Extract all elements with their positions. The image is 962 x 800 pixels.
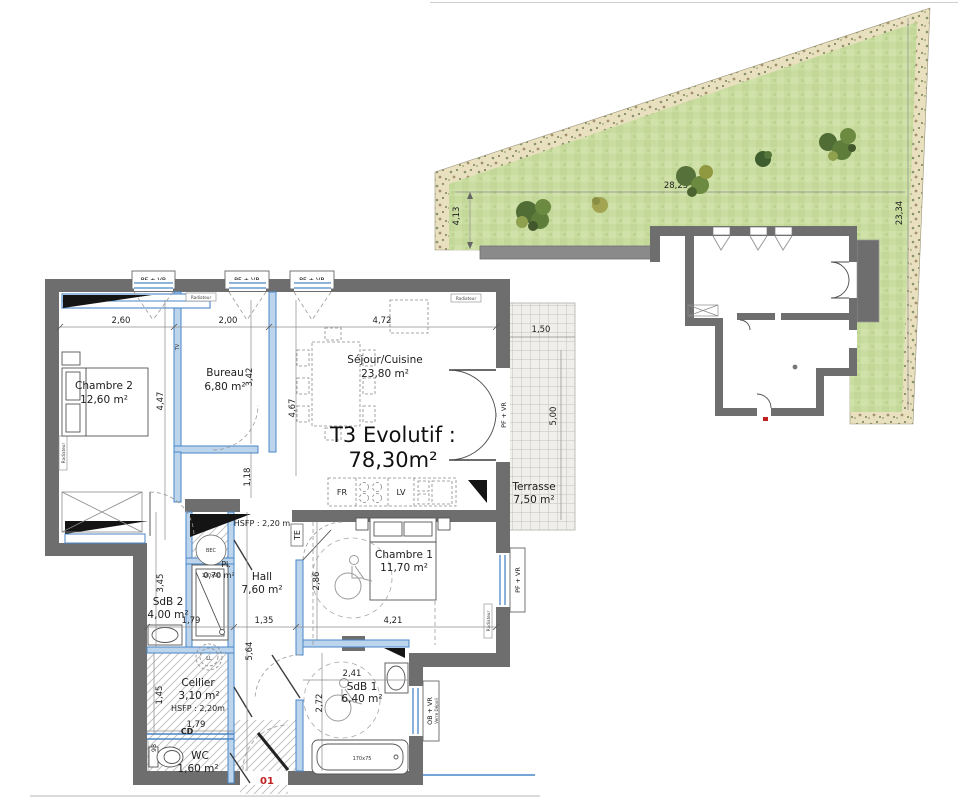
dim: 5,64: [245, 642, 255, 661]
label-sejour-area: 23,80 m²: [361, 368, 409, 380]
label-cellier-area: 3,10 m²: [178, 690, 219, 702]
garden-low-wall: [480, 246, 655, 259]
label-bureau-area: 6,80 m²: [204, 381, 245, 393]
entrance-door-number: 01: [260, 776, 274, 787]
dim-garden-left: 4,13: [452, 207, 462, 226]
label-chambre1-name: Chambre 1: [375, 549, 433, 561]
dim: 2,72: [315, 694, 325, 713]
floorplan-drawing: 28,25 4,13 23,34: [0, 0, 962, 800]
label-sdb2-name: SdB 2: [153, 596, 184, 608]
dim: 2,60: [112, 316, 131, 326]
label-hall-area: 7,60 m²: [241, 584, 282, 596]
window-label: OB + VR: [426, 697, 434, 725]
label-te: TE: [293, 530, 302, 541]
label-cellier-name: Cellier: [181, 677, 215, 689]
label-terrasse-name: Terrasse: [511, 481, 555, 493]
dim: 1,18: [243, 468, 253, 487]
label-placard-area: 0,70 m²: [203, 571, 234, 580]
dim: 2,00: [219, 316, 238, 326]
dim: 4,72: [373, 316, 392, 326]
mini-entry-marker: [763, 417, 768, 421]
label-placard-name: Pl.: [221, 560, 231, 569]
floorplan-canvas: 28,25 4,13 23,34: [0, 0, 962, 800]
dim: 1,45: [155, 686, 165, 705]
tree-cluster-2: [592, 197, 608, 213]
window-top-3: PF + VR: [290, 271, 334, 320]
terrace-door: PF + VR: [449, 368, 510, 462]
label-cd: CD: [181, 727, 194, 736]
window-label: PF + VR: [514, 567, 522, 593]
radiator-label: Radiateur: [191, 295, 212, 300]
window-chambre1: PF + VR: [496, 548, 525, 612]
label-hsfp-cellier: HSFP : 2,20m: [171, 704, 225, 713]
terrace-door-label: PF + VR: [500, 402, 508, 428]
radiator-label: Radiateur: [61, 443, 66, 464]
mini-dot: [793, 365, 798, 370]
basin-sdb2: [148, 625, 182, 645]
dim-garden-right: 23,34: [895, 201, 905, 225]
radiator-label: Radiateur: [486, 611, 491, 632]
water-heater-label: BEC: [206, 548, 217, 554]
bathtub-size-label: 170x75: [353, 756, 372, 762]
dim: 4,47: [156, 392, 166, 411]
label-chambre2-name: Chambre 2: [75, 380, 133, 392]
window-glass-label: Verre Dépoli: [434, 698, 439, 724]
sink-sdb1: [385, 663, 408, 693]
main-plan: PF + VR PF + VR PF + VR: [45, 271, 575, 794]
dim: 5,00: [549, 407, 559, 426]
label-terrasse-area: 7,50 m²: [513, 494, 554, 506]
washing-machine-label: LL: [206, 656, 212, 662]
mini-terrace: [857, 240, 879, 322]
label-sejour-name: Séjour/Cuisine: [347, 354, 422, 366]
label-sdb1-name: SdB 1: [347, 681, 378, 693]
kitchen-counter: FR LV: [328, 478, 456, 506]
window-top-2: PF + VR: [225, 271, 269, 320]
dim: 1,50: [532, 325, 551, 335]
dim: 3,45: [156, 574, 166, 593]
plan-title-line2: 78,30m²: [349, 448, 438, 472]
label-tv: TV: [175, 343, 181, 351]
dim: 4,21: [384, 616, 403, 626]
label-sdb1-area: 6,40 m²: [341, 693, 382, 705]
label-wc-area: 1,60 m²: [177, 763, 218, 775]
label-chambre1-area: 11,70 m²: [380, 562, 428, 574]
cabinet-sejour: [390, 300, 428, 333]
label-wc-name: WC: [191, 750, 209, 762]
bathtub-sdb1: 170x75: [312, 740, 408, 774]
window-sdb1: OB + VR Verre Dépoli: [409, 681, 439, 741]
dim: 3,42: [245, 368, 255, 387]
fridge-label: FR: [337, 488, 348, 497]
dim: 2,86: [312, 572, 322, 591]
dim: 93: [150, 744, 158, 752]
dim: 2,41: [343, 669, 362, 679]
dishwasher-label: LV: [396, 488, 406, 497]
dim: 1,35: [255, 616, 274, 626]
label-hall-name: Hall: [252, 571, 272, 583]
label-chambre2-area: 12,60 m²: [80, 394, 128, 406]
tree-cluster-1: [516, 199, 551, 231]
radiator-label: Radiateur: [456, 296, 477, 301]
label-hsfp-hall: HSFP : 2,20 m: [234, 519, 291, 528]
label-bureau-name: Bureau: [206, 367, 244, 379]
label-sdb2-area: 4,00 m²: [147, 609, 188, 621]
plan-title-line1: T3 Evolutif :: [329, 423, 456, 447]
mini-plan: [650, 226, 879, 421]
dim: 4,67: [288, 399, 298, 418]
